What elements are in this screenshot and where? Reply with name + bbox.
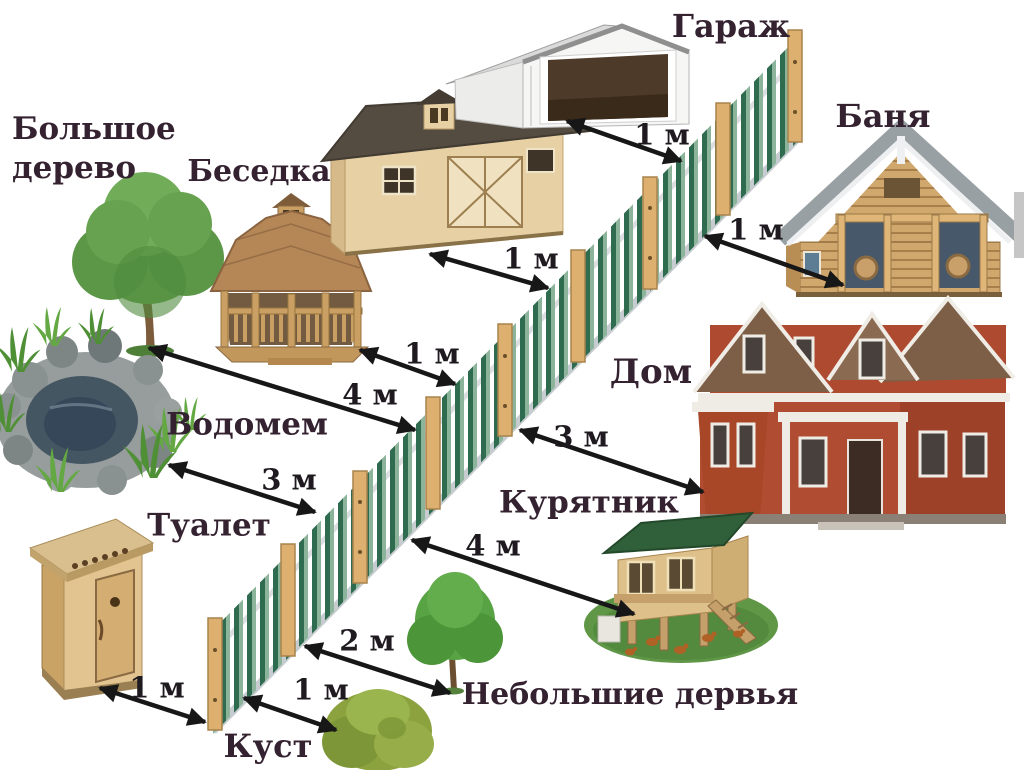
label-gazebo: Беседка: [187, 157, 330, 187]
label-house: Дом: [610, 355, 692, 389]
label-pond: Водомем: [166, 410, 328, 441]
distances-infographic: Большое дерево Беседка Гараж Баня Водоме…: [0, 0, 1024, 770]
label-small-trees: Небольшие дервья: [462, 680, 798, 710]
label-garage: Гараж: [672, 10, 790, 42]
distance-small-trees-fence: 2 м: [339, 627, 394, 656]
distance-shed-fence: 1 м: [503, 245, 558, 274]
distance-house-fence: 3 м: [553, 423, 608, 452]
distance-pond-fence: 3 м: [261, 466, 316, 495]
label-banya: Баня: [835, 100, 930, 132]
label-coop: Курятник: [499, 488, 679, 519]
distance-banya-fence: 1 м: [728, 216, 783, 245]
label-big-tree-line2: дерево: [12, 149, 176, 188]
distance-gazebo-fence: 1 м: [404, 340, 459, 369]
distance-bush-fence: 1 м: [293, 676, 348, 705]
text-layer: Большое дерево Беседка Гараж Баня Водоме…: [0, 0, 1024, 770]
distance-big-tree-fence: 4 м: [342, 381, 397, 410]
label-bush: Куст: [224, 730, 313, 762]
label-big-tree-line1: Большое: [12, 110, 176, 149]
distance-coop-fence: 4 м: [465, 532, 520, 561]
label-big-tree: Большое дерево: [12, 110, 176, 188]
distance-toilet-fence: 1 м: [129, 674, 184, 703]
label-toilet: Туалет: [147, 511, 271, 542]
distance-garage-fence: 1 м: [634, 121, 689, 150]
